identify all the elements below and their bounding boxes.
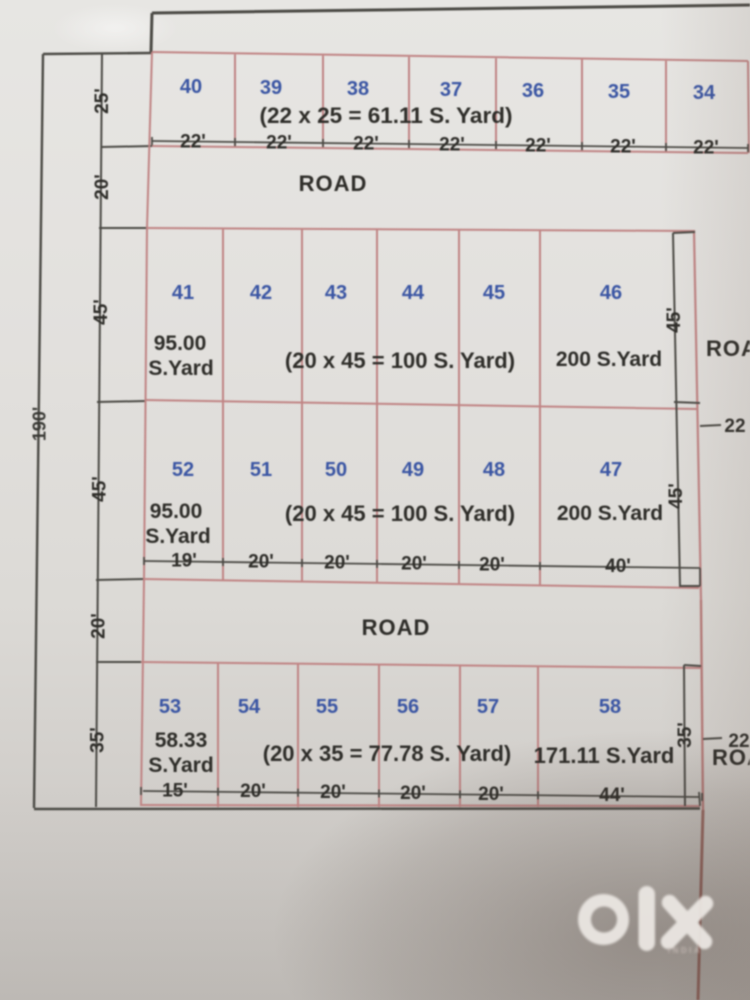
svg-text:INDIA: INDIA [668,946,702,955]
